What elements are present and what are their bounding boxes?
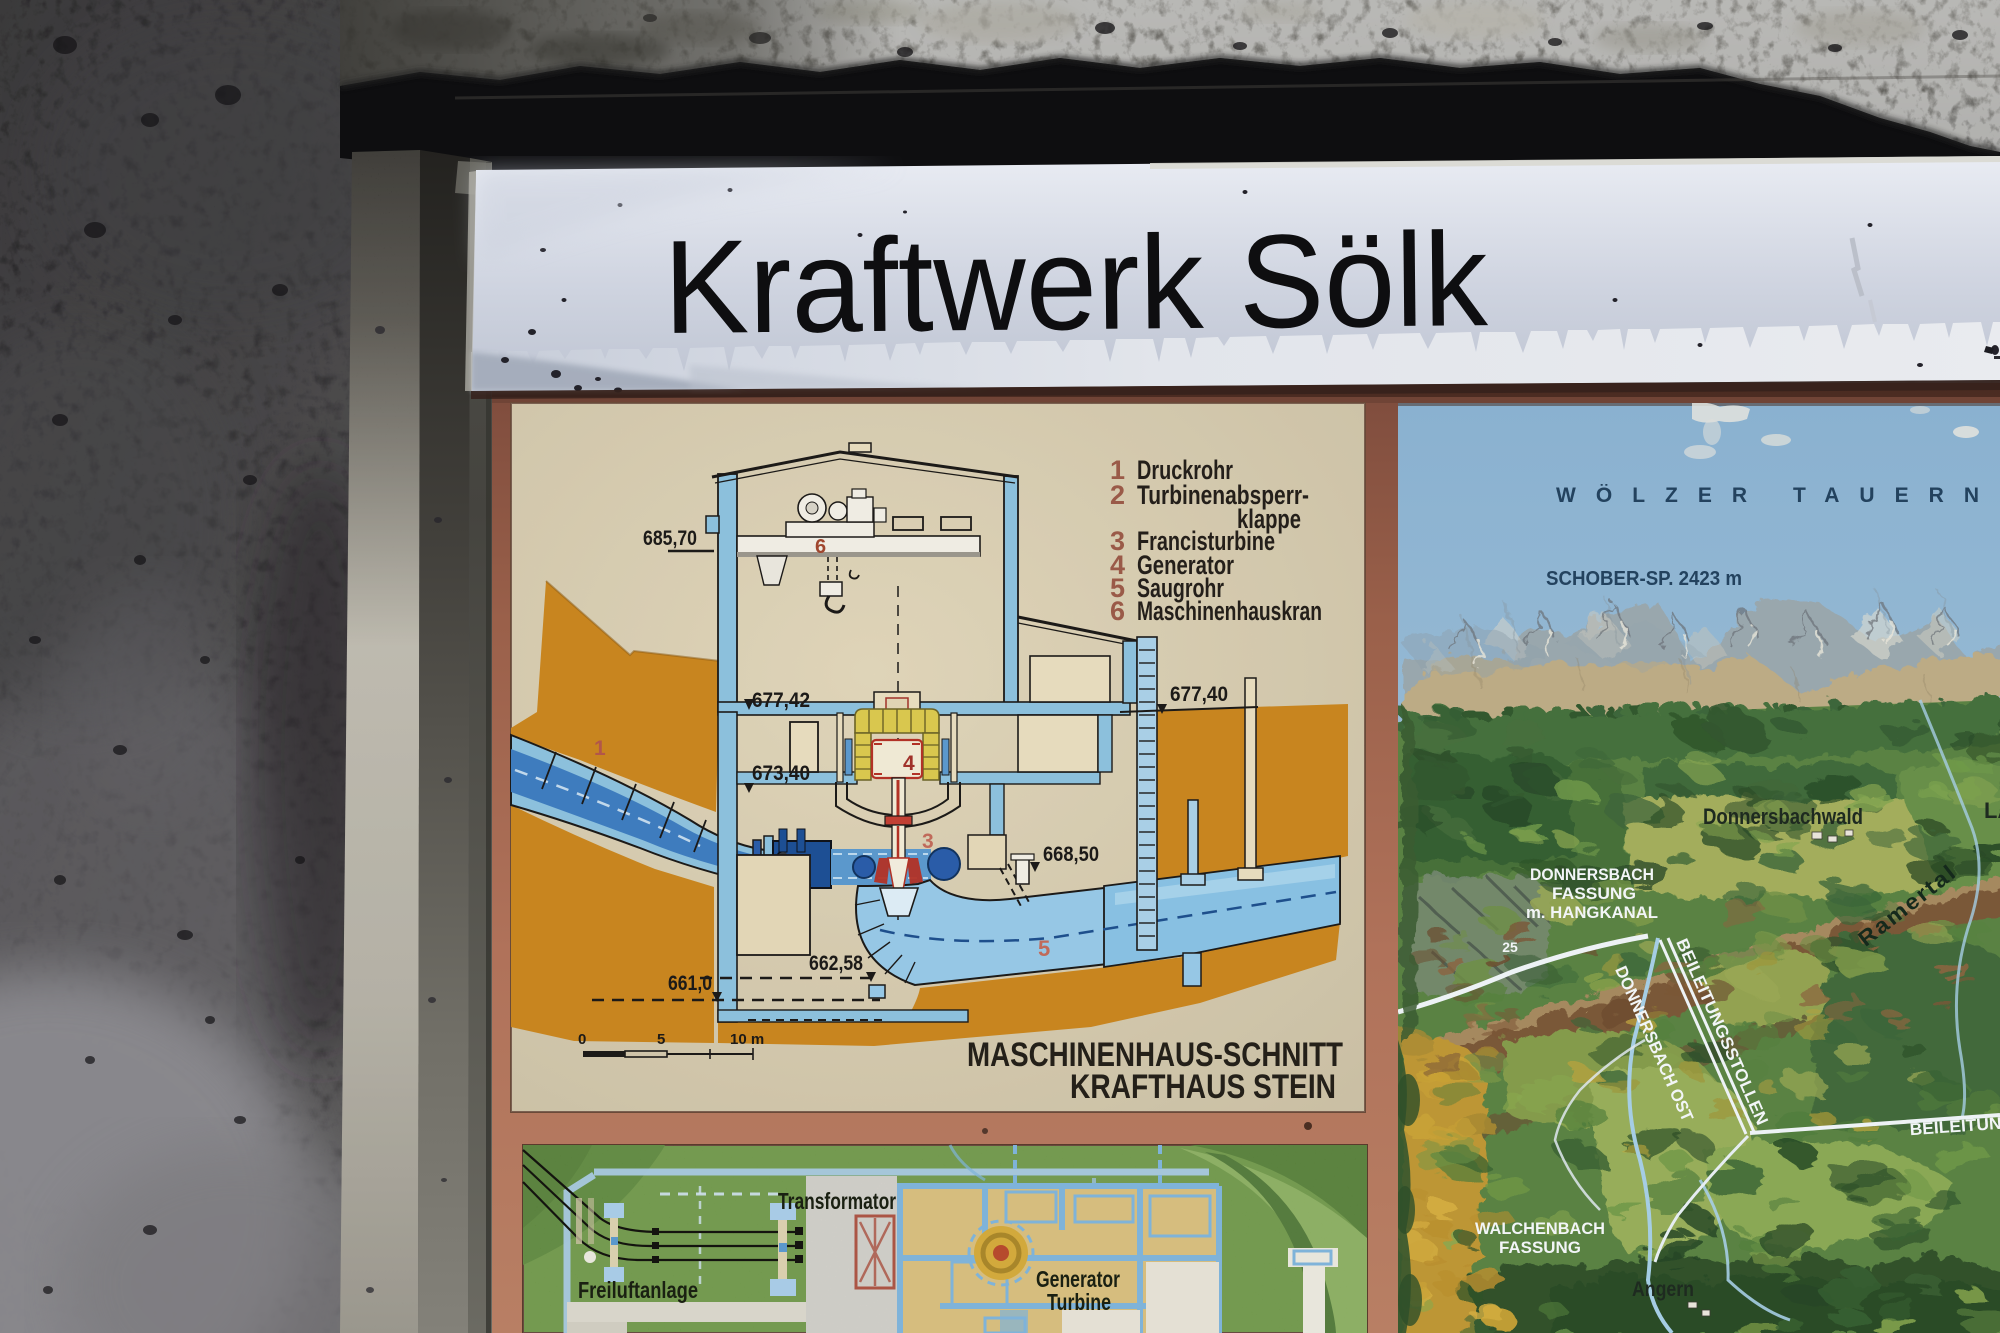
svg-text:Donnersbachwald: Donnersbachwald [1703,804,1863,829]
svg-text:FASSUNG: FASSUNG [1552,884,1636,903]
svg-text:m. HANGKANAL: m. HANGKANAL [1526,903,1658,922]
svg-text:25: 25 [1502,939,1518,955]
svg-text:677,42: 677,42 [752,689,810,712]
svg-text:WALCHENBACH: WALCHENBACH [1475,1219,1605,1238]
svg-text:5: 5 [657,1031,665,1048]
svg-text:4: 4 [903,752,915,775]
svg-text:668,50: 668,50 [1043,843,1099,866]
svg-text:Transformator: Transformator [778,1188,896,1214]
svg-text:6: 6 [815,536,826,558]
svg-text:Freiluftanlage: Freiluftanlage [578,1277,698,1303]
svg-text:673,40: 673,40 [752,762,810,785]
svg-text:662,58: 662,58 [809,952,863,975]
svg-text:2: 2 [1110,480,1125,510]
svg-text:661,0: 661,0 [668,972,712,995]
svg-text:Maschinenhauskran: Maschinenhauskran [1137,596,1322,626]
svg-text:10 m: 10 m [730,1031,764,1048]
svg-text:Kraftwerk Sölk: Kraftwerk Sölk [663,206,1489,362]
svg-text:KRAFTHAUS STEIN: KRAFTHAUS STEIN [1070,1068,1336,1106]
svg-text:685,70: 685,70 [643,527,697,550]
svg-text:Turbine: Turbine [1047,1289,1111,1315]
svg-text:DONNERSBACH: DONNERSBACH [1530,865,1654,884]
svg-text:677,40: 677,40 [1170,683,1228,706]
svg-text:FASSUNG: FASSUNG [1499,1238,1581,1257]
svg-text:SCHOBER-SP. 2423 m: SCHOBER-SP. 2423 m [1546,568,1742,590]
svg-text:0: 0 [578,1031,586,1048]
svg-text:5: 5 [1038,936,1050,961]
svg-text:6: 6 [1110,596,1125,626]
svg-text:3: 3 [922,830,934,853]
svg-text:1: 1 [594,737,606,760]
svg-text:Angern: Angern [1632,1278,1694,1301]
svg-text:LA: LA [1984,798,2000,823]
